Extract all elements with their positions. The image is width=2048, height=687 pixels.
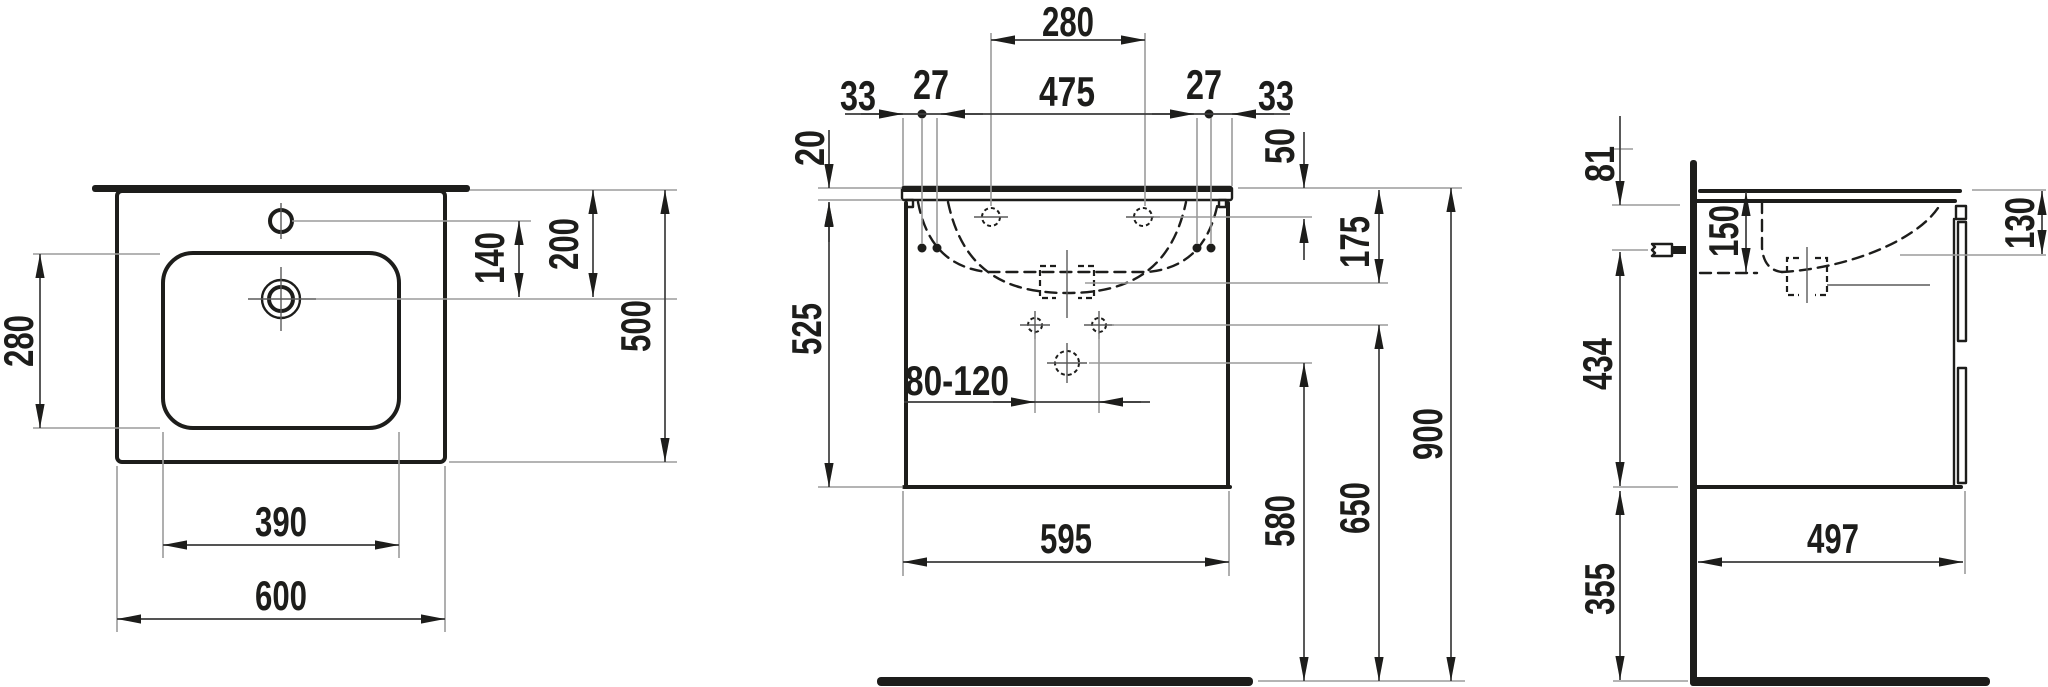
floor-line-side — [1690, 677, 1990, 686]
front-geometry — [877, 187, 1253, 686]
front-view: 280 33 27 475 27 33 20 525 50 175 80-120… — [783, 0, 1465, 686]
side-front-bracket — [1956, 206, 1966, 219]
dim-label-rim-height: 900 — [1404, 408, 1451, 460]
dimension-drawing-canvas: 280 140 200 500 390 600 — [0, 0, 2048, 687]
dim-label-floor-clearance: 355 — [1576, 563, 1623, 615]
plan-view: 280 140 200 500 390 600 — [0, 185, 677, 632]
dim-label-fixing-holes-height: 650 — [1331, 482, 1378, 534]
dim-label-upper-fixing-offset: 81 — [1576, 146, 1623, 182]
dim-label-tap-to-drain: 140 — [466, 232, 513, 284]
front-basin-underside-dashed — [918, 202, 1218, 272]
side-bowl-dashed — [1782, 208, 1938, 272]
dim-label-basin-depth: 280 — [0, 315, 42, 367]
dim-label-cabinet-width: 595 — [1040, 515, 1092, 562]
front-labels: 280 33 27 475 27 33 20 525 50 175 80-120… — [783, 0, 1451, 562]
dim-label-edge-to-drain: 200 — [540, 218, 587, 270]
wall-line — [1690, 160, 1697, 686]
dim-label-siphon-below-top: 175 — [1331, 216, 1378, 268]
side-view: 81 150 130 434 355 497 — [1574, 116, 2046, 686]
wall-anchor-icon — [1612, 244, 1686, 256]
dim-label-basin-width: 390 — [255, 498, 307, 545]
side-door-lower — [1958, 368, 1966, 483]
dim-label-drain-height: 580 — [1256, 495, 1303, 547]
dim-label-top-thickness: 20 — [786, 130, 833, 166]
dim-label-holes-below-top: 50 — [1256, 128, 1303, 164]
dim-label-drain-adjust: 80-120 — [905, 357, 1009, 404]
floor-line-front — [877, 677, 1253, 686]
dim-label-hole-offset-right: 27 — [1186, 61, 1222, 108]
plan-labels: 280 140 200 500 390 600 — [0, 218, 659, 619]
dim-label-fixing-centres: 475 — [1039, 68, 1095, 115]
side-extension-lines — [1612, 149, 2046, 681]
side-door-upper — [1958, 222, 1966, 341]
dim-label-bowl-depth: 150 — [1700, 205, 1747, 257]
dim-label-hole-offset-left: 27 — [913, 61, 949, 108]
front-hidden-lines — [918, 110, 1219, 384]
dim-label-bracket-offset: 434 — [1574, 338, 1621, 390]
dim-label-tap-hole-centres: 280 — [1042, 0, 1094, 45]
dim-label-side-left: 33 — [840, 72, 876, 119]
front-slab-notch-right — [1219, 200, 1226, 207]
dim-label-apron-height: 130 — [1996, 197, 2043, 249]
plan-geometry — [92, 185, 470, 462]
dim-label-overall-depth: 500 — [612, 300, 659, 352]
side-labels: 81 150 130 434 355 497 — [1574, 146, 2043, 615]
dim-label-side-right: 33 — [1258, 72, 1294, 119]
dim-label-overall-width: 600 — [255, 572, 307, 619]
technical-drawing-page: 280 140 200 500 390 600 — [0, 0, 2048, 687]
dim-label-cabinet-height: 525 — [783, 303, 830, 355]
dim-label-cabinet-depth: 497 — [1807, 515, 1859, 562]
